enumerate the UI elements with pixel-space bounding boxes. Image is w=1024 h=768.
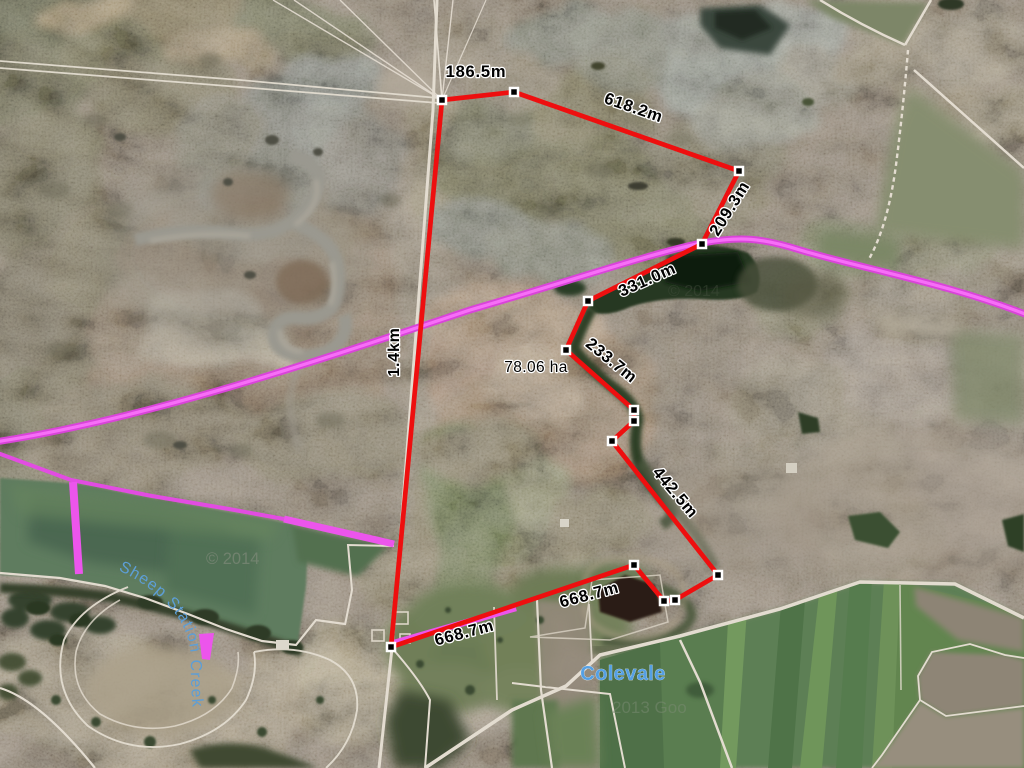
svg-text:Colevale: Colevale	[580, 663, 665, 685]
svg-text:© 2014: © 2014	[206, 550, 259, 568]
svg-text:186.5m: 186.5m	[446, 63, 507, 81]
svg-text:1.4km: 1.4km	[386, 327, 403, 376]
svg-text:2013 Goo: 2013 Goo	[612, 698, 687, 717]
svg-text:© 2014: © 2014	[668, 283, 720, 300]
svg-text:78.06 ha: 78.06 ha	[504, 359, 568, 376]
